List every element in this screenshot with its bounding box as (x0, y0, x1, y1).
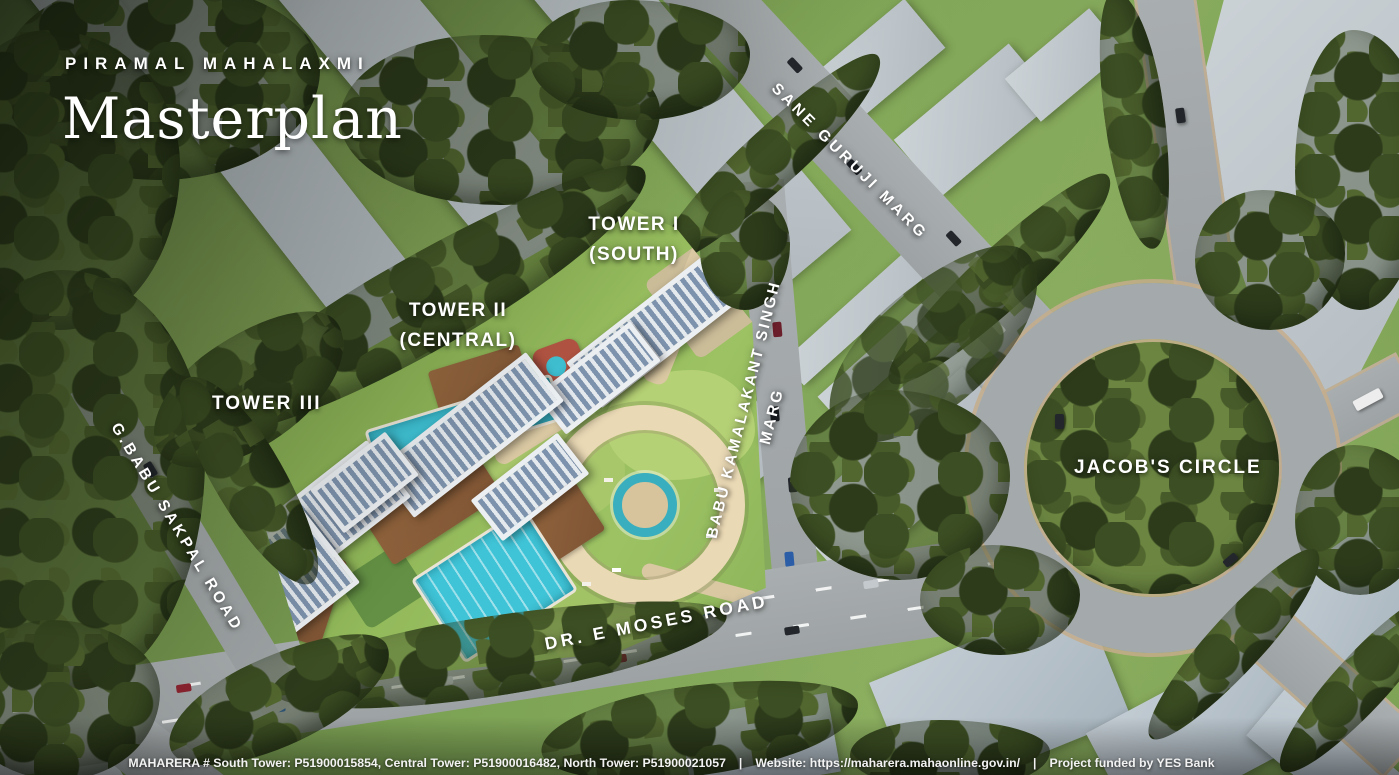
page-title: Masterplan (62, 86, 403, 152)
footer-divider: | (1033, 756, 1036, 770)
label-tower-3: TOWER III (212, 393, 321, 415)
tower-1-line1: TOWER I (559, 210, 709, 240)
masterplan-render: PIRAMAL MAHALAXMI Masterplan TOWER I (SO… (0, 0, 1399, 775)
label-jacobs-circle: JACOB'S CIRCLE (1074, 457, 1262, 479)
footer-divider: | (739, 756, 742, 770)
label-tower-2: TOWER II (CENTRAL) (377, 296, 539, 356)
water-feature (613, 473, 677, 537)
footer-bar: MAHARERA # South Tower: P51900015854, Ce… (0, 756, 1371, 770)
tower-2-line2: (CENTRAL) (377, 326, 539, 356)
tower-2-line1: TOWER II (377, 296, 539, 326)
brand-title: PIRAMAL MAHALAXMI (65, 54, 370, 74)
funding-note: Project funded by YES Bank (1050, 756, 1215, 770)
label-tower-1: TOWER I (SOUTH) (559, 210, 709, 270)
tower-1-line2: (SOUTH) (559, 240, 709, 270)
car (1175, 107, 1186, 123)
maharera-registration: MAHARERA # South Tower: P51900015854, Ce… (128, 756, 726, 770)
car (1055, 414, 1064, 429)
maharera-website: Website: https://maharera.mahaonline.gov… (755, 756, 1020, 770)
